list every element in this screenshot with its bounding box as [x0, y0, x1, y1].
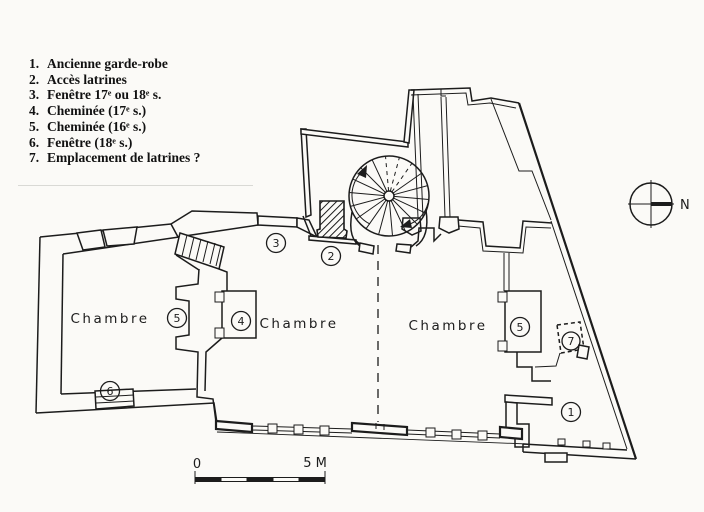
spine-wall — [176, 269, 256, 422]
svg-text:6: 6 — [107, 385, 114, 398]
window-3-wall — [258, 216, 297, 227]
scale-end-label: 5 M — [303, 456, 327, 471]
room-label: Chambre — [70, 311, 149, 327]
marker-5-left: 5 — [168, 309, 187, 328]
right-chamber-top-walls — [458, 220, 552, 291]
gallery-wall — [216, 421, 528, 444]
marker-3: 3 — [267, 234, 286, 253]
window-reveal — [77, 230, 105, 250]
svg-text:3: 3 — [273, 237, 280, 250]
fireplace-5-right — [498, 291, 560, 381]
north-compass: N — [628, 180, 690, 228]
scale-bar: 0 5 M — [193, 456, 327, 484]
straight-stairs — [175, 233, 224, 270]
room-label: Chambre — [408, 318, 487, 334]
window-reveal — [103, 227, 137, 246]
floor-plan-figure: 1.Ancienne garde-robe 2.Accès latrines 3… — [0, 0, 704, 512]
plan-drawing: Chambre Chambre Chambre 1 2 3 4 5 5 6 7 … — [0, 0, 704, 512]
svg-text:2: 2 — [328, 250, 335, 263]
room-labels: Chambre Chambre Chambre — [70, 311, 487, 334]
marker-1: 1 — [562, 403, 581, 422]
svg-text:5: 5 — [517, 321, 524, 334]
svg-text:5: 5 — [174, 312, 181, 325]
fireplace-4 — [215, 291, 256, 338]
svg-text:7: 7 — [568, 335, 575, 348]
marker-7: 7 — [562, 332, 580, 350]
svg-text:1: 1 — [568, 406, 575, 419]
svg-text:4: 4 — [238, 315, 245, 328]
latrine-access-block — [317, 201, 347, 238]
marker-2: 2 — [322, 247, 341, 266]
north-label: N — [680, 198, 690, 213]
scale-start-label: 0 — [193, 457, 201, 472]
room-label: Chambre — [259, 316, 338, 332]
